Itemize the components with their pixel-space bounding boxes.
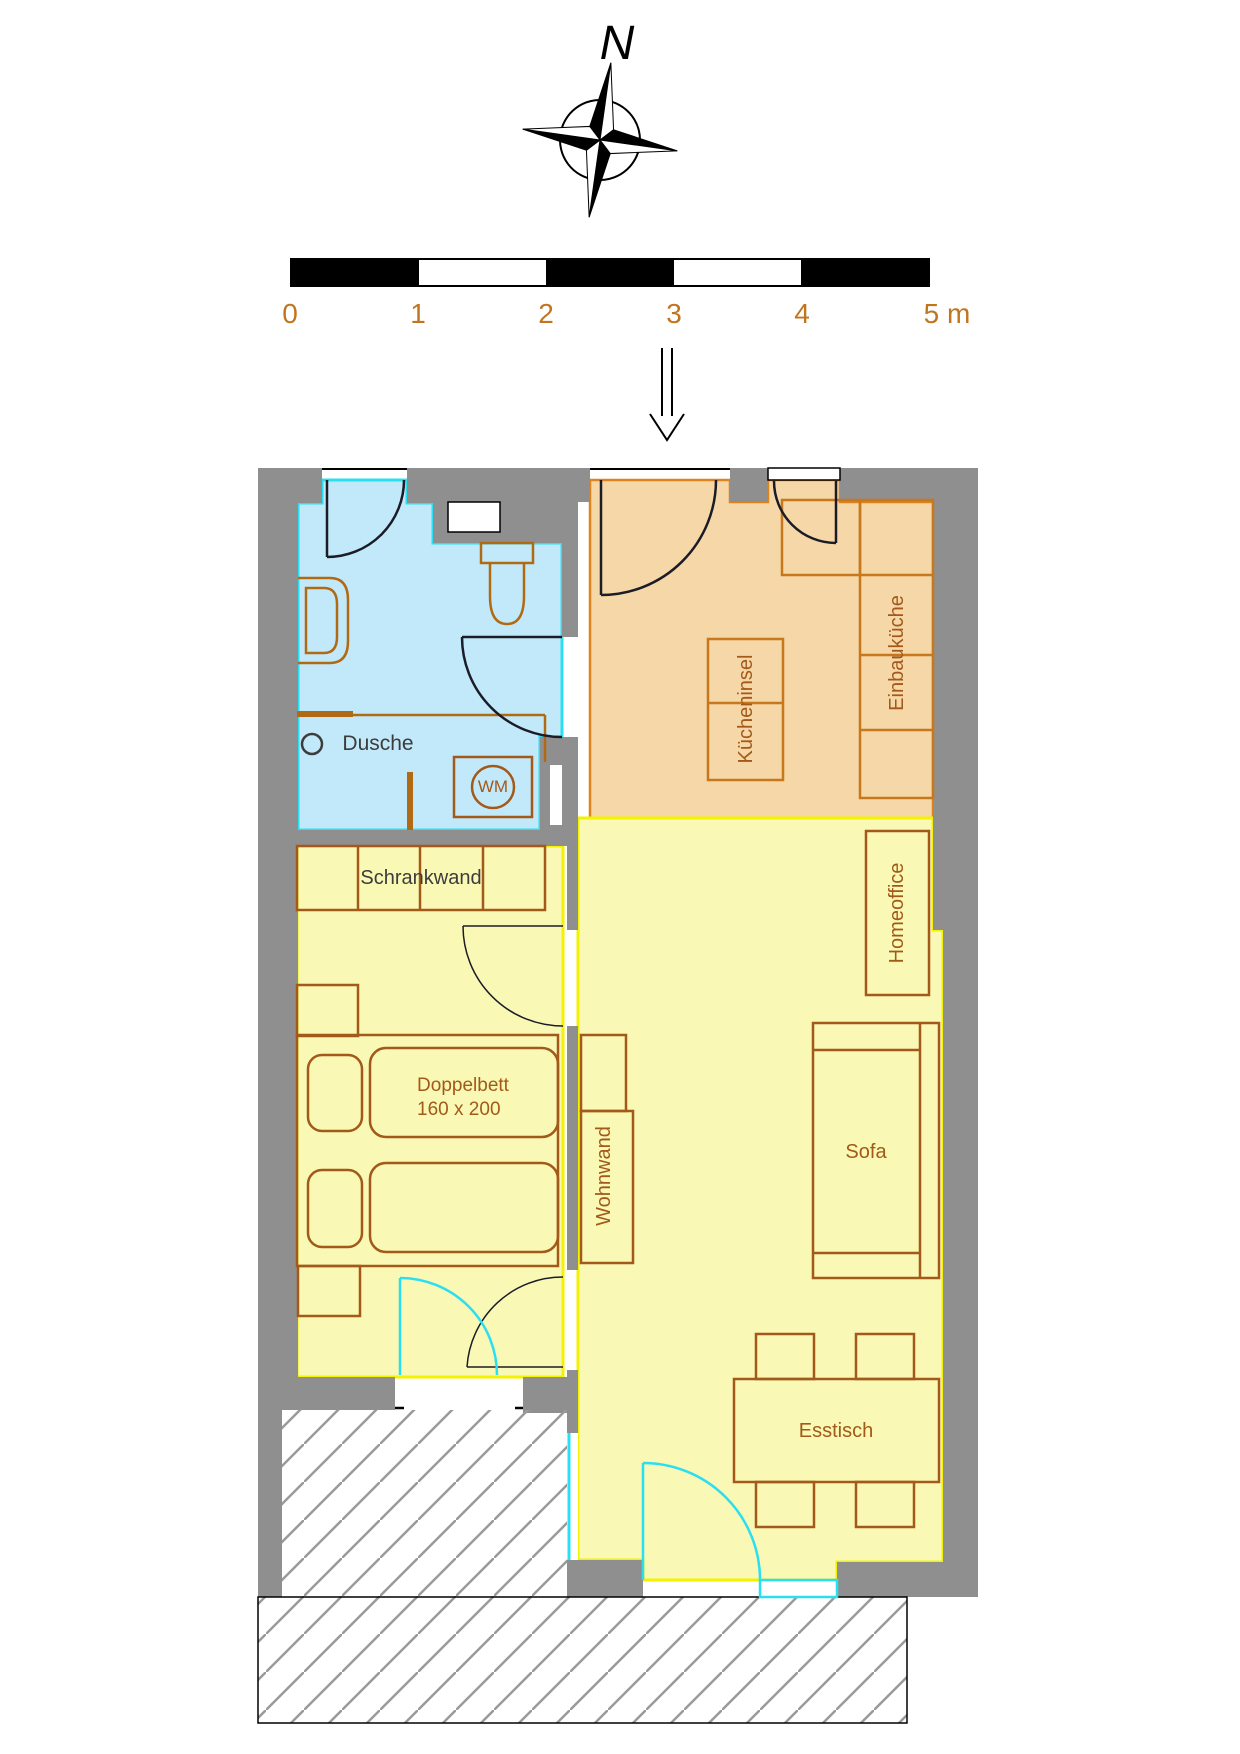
bed-living-divider-upper [567,846,578,930]
scale-seg-3 [546,260,673,285]
top-wall-between-door-window [730,468,768,502]
kitchen-window [768,468,840,480]
bottom-wall-left-block [567,1560,643,1597]
wardrobe-label: Schrankwand [360,867,481,889]
floorplan-canvas: 0 1 2 3 4 5 m N Dusche WM Kücheninsel Ei… [0,0,1240,1754]
scale-tick-2: 2 [538,299,554,329]
scale-tick-4: 4 [794,299,810,329]
bathroom-window-niche [448,502,500,532]
right-wall-lower [943,930,978,1597]
terrace-lower [258,1597,907,1723]
tv-wall-label: Wohnwand [593,1126,615,1226]
sofa-label: Sofa [845,1141,886,1163]
terrace-upper [282,1410,567,1597]
bath-bed-divider-wall [298,830,578,846]
bathroom-wall-slot [550,765,562,825]
scale-seg-5 [801,260,928,285]
bed-living-divider-lower [567,1370,578,1433]
bedroom-bottom-wall [258,1377,395,1410]
bottom-wall-right [837,1562,943,1597]
arrow-head [650,414,684,440]
scale-tick-3: 3 [666,299,682,329]
left-wall [258,468,298,1410]
washing-machine-label: WM [478,776,508,798]
bed-label: Doppelbett 160 x 200 [417,1074,509,1122]
shower-label: Dusche [342,733,413,755]
bed-label-line1: Doppelbett [417,1074,509,1098]
bedroom-bottom-wall-tooth [523,1377,567,1413]
top-wall-right [840,468,978,502]
scale-seg-2 [419,260,546,285]
right-wall-upper [933,497,978,930]
compass-rose [512,52,688,228]
scale-bar [290,258,930,287]
home-office-label: Homeoffice [886,863,908,964]
bed-living-divider-mid [567,1026,578,1270]
entrance-left-jamb [562,468,590,502]
living-terrace-door-threshold [760,1580,837,1597]
scale-seg-4 [674,260,801,285]
bathroom-right-wall-upper [562,502,578,637]
compass-north-label: N [600,33,635,55]
left-wall-terrace [258,1410,282,1597]
builtin-kitchen-label: Einbauküche [886,595,908,711]
dining-table-label: Esstisch [799,1420,873,1442]
scale-tick-0: 0 [282,299,298,329]
kitchen-floor [590,480,933,818]
scale-tick-5: 5 m [924,299,971,329]
entrance-arrow-icon [650,348,684,440]
top-wall-mid [407,468,433,503]
bed-label-line2: 160 x 200 [417,1098,509,1122]
scale-seg-1 [292,260,419,285]
scale-tick-1: 1 [410,299,426,329]
kitchen-island-label: Kücheninsel [735,655,757,764]
